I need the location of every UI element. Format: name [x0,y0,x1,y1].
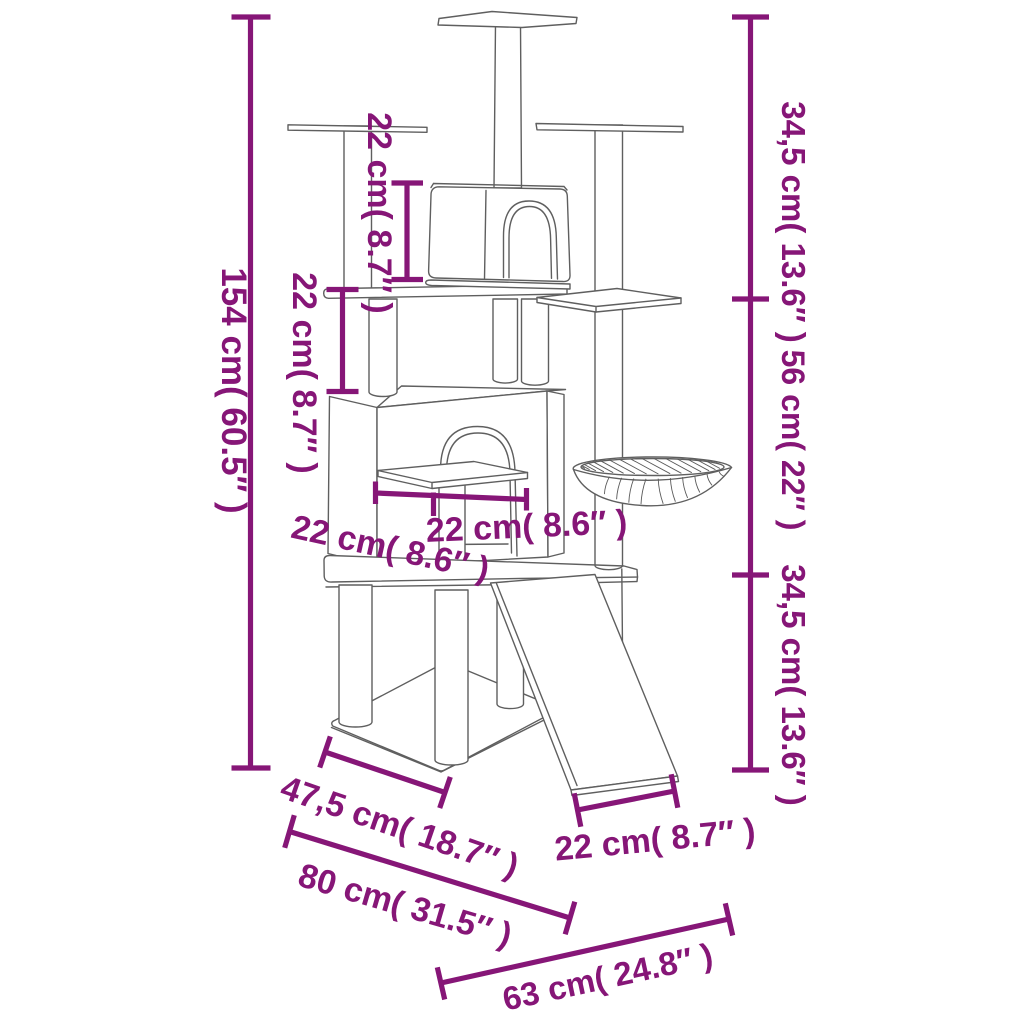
svg-text:56 cm( 22″ ): 56 cm( 22″ ) [775,350,811,531]
svg-text:22 cm( 8.7″ ): 22 cm( 8.7″ ) [360,112,398,314]
svg-text:34,5 cm( 13.6″ ): 34,5 cm( 13.6″ ) [775,101,812,342]
svg-text:22 cm( 8.7″ ): 22 cm( 8.7″ ) [285,272,323,474]
svg-text:34,5 cm( 13.6″ ): 34,5 cm( 13.6″ ) [775,564,812,805]
svg-text:154 cm( 60.5″ ): 154 cm( 60.5″ ) [214,267,253,513]
